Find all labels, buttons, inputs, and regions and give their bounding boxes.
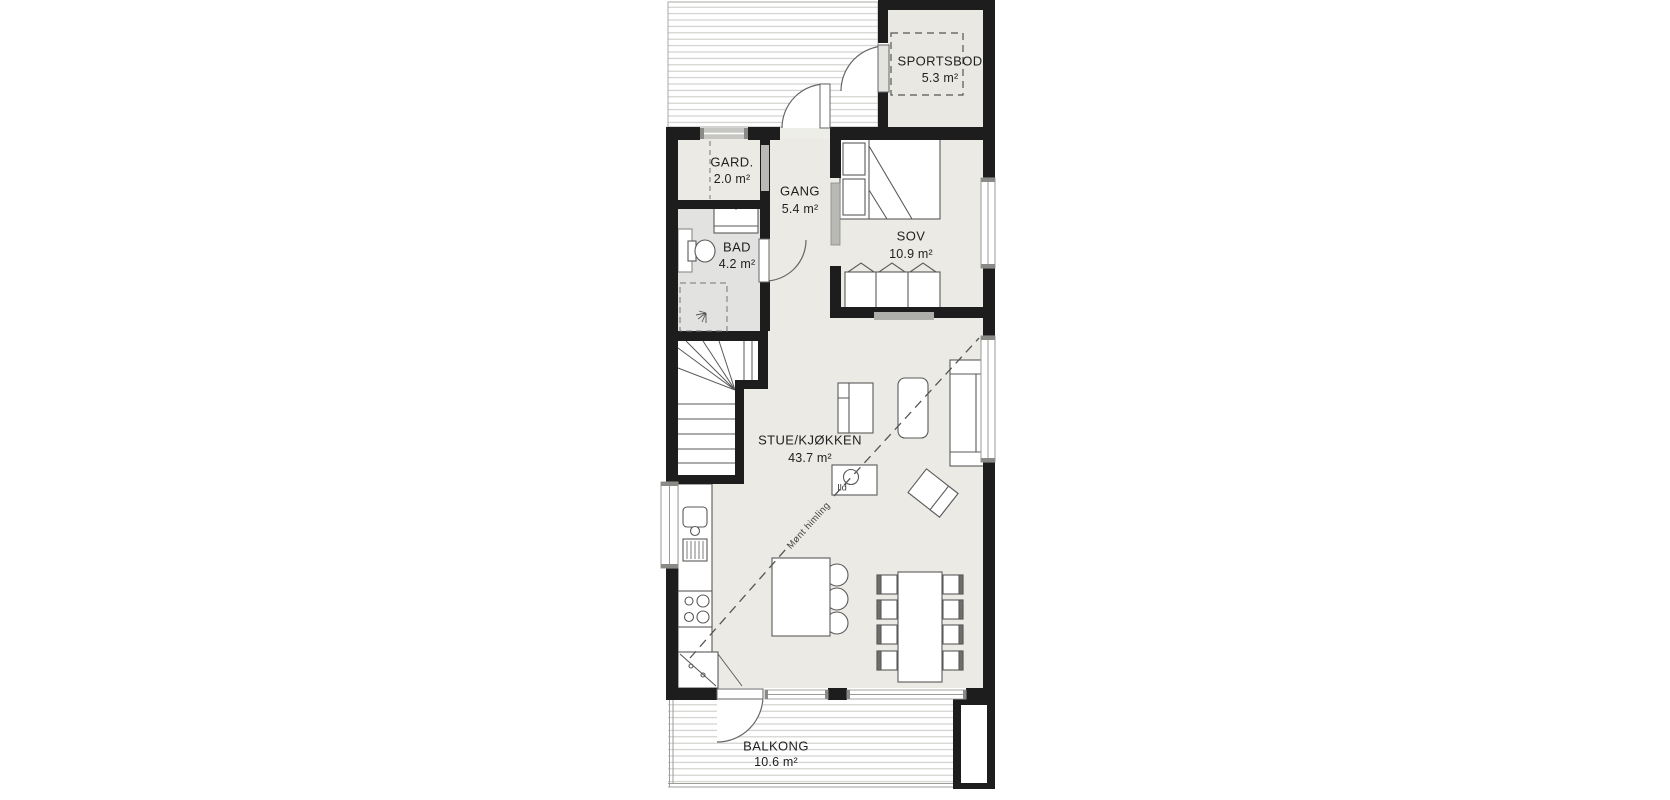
entry-door-leaf xyxy=(820,84,830,128)
bathroom-door-leaf xyxy=(759,239,769,282)
room-area-gard: 2.0 m² xyxy=(714,173,751,186)
room-label-sov: SOV xyxy=(897,230,926,243)
kitchen-island xyxy=(772,558,830,636)
sliding-door-gard xyxy=(761,145,769,191)
tv-bench xyxy=(838,383,873,433)
storage-box xyxy=(961,705,987,783)
room-area-sov: 10.9 m² xyxy=(889,248,933,261)
room-area-sportsbod: 5.3 m² xyxy=(922,72,959,85)
room-area-stue: 43.7 m² xyxy=(788,452,832,465)
fireplace-label: Ild xyxy=(837,484,847,493)
room-label-gard: GARD. xyxy=(710,156,753,169)
room-label-gang: GANG xyxy=(780,185,820,198)
room-area-gang: 5.4 m² xyxy=(782,203,819,216)
room-label-sportsbod: SPORTSBOD xyxy=(898,55,983,68)
sliding-door-sov xyxy=(831,183,840,245)
coffee-table xyxy=(898,378,928,438)
balcony-door-leaf xyxy=(717,689,763,699)
room-area-bad: 4.2 m² xyxy=(719,258,756,271)
floorplan-drawing xyxy=(0,0,1670,800)
room-label-balkong: BALKONG xyxy=(743,740,809,753)
sofa xyxy=(950,360,984,466)
dining-table xyxy=(898,572,942,682)
room-label-bad: BAD xyxy=(723,241,751,254)
sov-living-opening xyxy=(874,312,934,320)
floorplan-page: SPORTSBOD 5.3 m² GARD. 2.0 m² GANG 5.4 m… xyxy=(0,0,1670,800)
sportsbod-door-leaf xyxy=(878,45,889,92)
bed xyxy=(840,139,940,219)
room-area-balkong: 10.6 m² xyxy=(754,756,798,769)
cooktop xyxy=(678,591,712,627)
terrace-deck xyxy=(668,2,878,127)
room-label-stue: STUE/KJØKKEN xyxy=(758,434,862,447)
